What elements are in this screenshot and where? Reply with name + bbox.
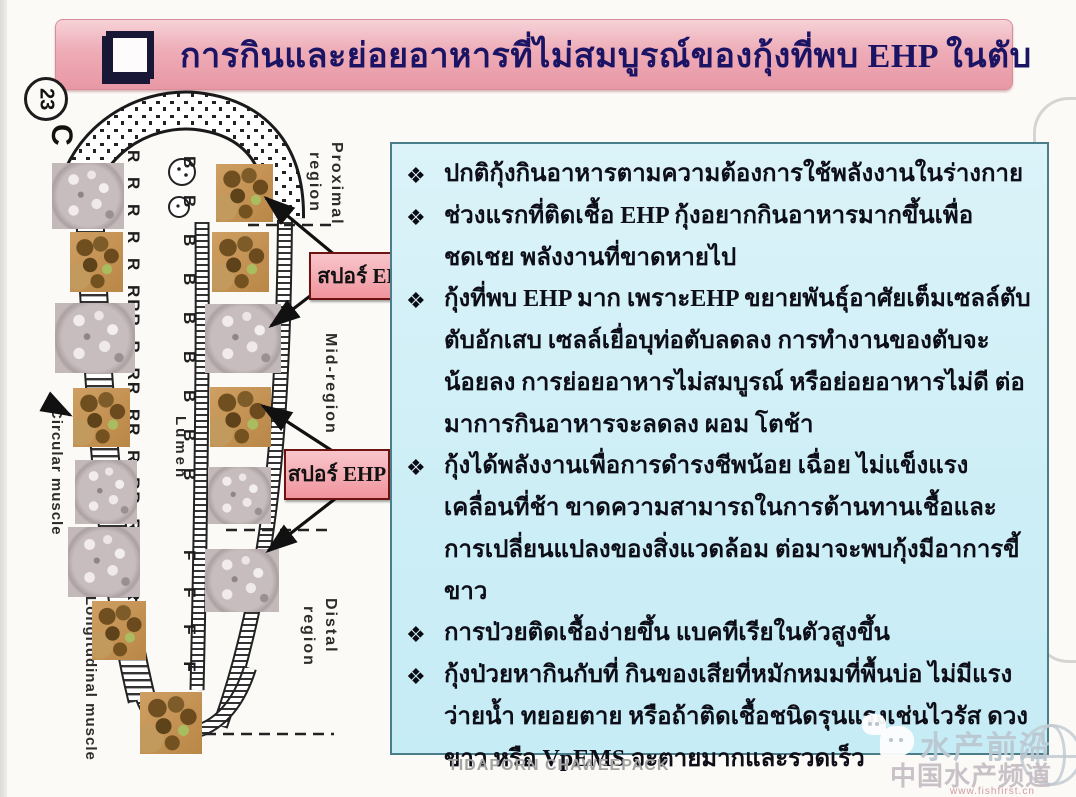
diamond-bullet-icon: ❖: [406, 158, 426, 196]
bullet-item: ❖ การป่วยติดเชื้อง่ายขึ้น แบคทีเรียในตัว…: [402, 613, 1033, 655]
bullet-text: ปกติกุ้งกินอาหารตามความต้องการใช้พลังงาน…: [444, 161, 1023, 187]
bullet-item: ❖ กุ้งได้พลังงานเพื่อการดำรงชีพน้อย เฉื่…: [402, 446, 1033, 613]
bullet-text: กุ้งได้พลังงานเพื่อการดำรงชีพน้อย เฉื่อย…: [444, 453, 1020, 604]
chat-bubble-icon: [880, 726, 914, 756]
content-text-box: ❖ ปกติกุ้งกินอาหารตามความต้องการใช้พลังง…: [390, 142, 1049, 755]
slide: R R R R R RRR R RR RR R RR RRRR RRR B B …: [0, 0, 1076, 797]
watermark: 水产前沿 中国水产频道 www.fishfirst.cn: [862, 716, 1076, 797]
bullet-item: ❖ ปกติกุ้งกินอาหารตามความต้องการใช้พลังง…: [402, 154, 1033, 196]
bullet-item: ❖ ช่วงแรกที่ติดเชื้อ EHP กุ้งอยากกินอาหา…: [402, 196, 1033, 280]
spore-ehp-label-text: สปอร์ EHP: [288, 458, 386, 491]
diamond-bullet-icon: ❖: [406, 200, 426, 238]
bullet-text: ช่วงแรกที่ติดเชื้อ EHP กุ้งอยากกินอาหารม…: [444, 203, 973, 271]
diamond-bullet-icon: ❖: [406, 283, 426, 321]
diamond-bullet-icon: ❖: [406, 450, 426, 488]
author-credit: TIDAPORN CHAWEEPACK: [448, 757, 669, 775]
spore-ehp-label: สปอร์ EHP: [284, 449, 390, 500]
diamond-bullet-icon: ❖: [406, 617, 426, 655]
watermark-url: www.fishfirst.cn: [950, 786, 1035, 797]
bullet-list: ❖ ปกติกุ้งกินอาหารตามความต้องการใช้พลังง…: [402, 154, 1033, 780]
bullet-text: การป่วยติดเชื้อง่ายขึ้น แบคทีเรียในตัวสู…: [444, 620, 890, 646]
diamond-bullet-icon: ❖: [406, 659, 426, 697]
bullet-text: กุ้งที่พบ EHP มาก เพราะEHP ขยายพันธุ์อาศ…: [444, 286, 1031, 437]
bullet-item: ❖ กุ้งที่พบ EHP มาก เพราะEHP ขยายพันธุ์อ…: [402, 279, 1033, 446]
